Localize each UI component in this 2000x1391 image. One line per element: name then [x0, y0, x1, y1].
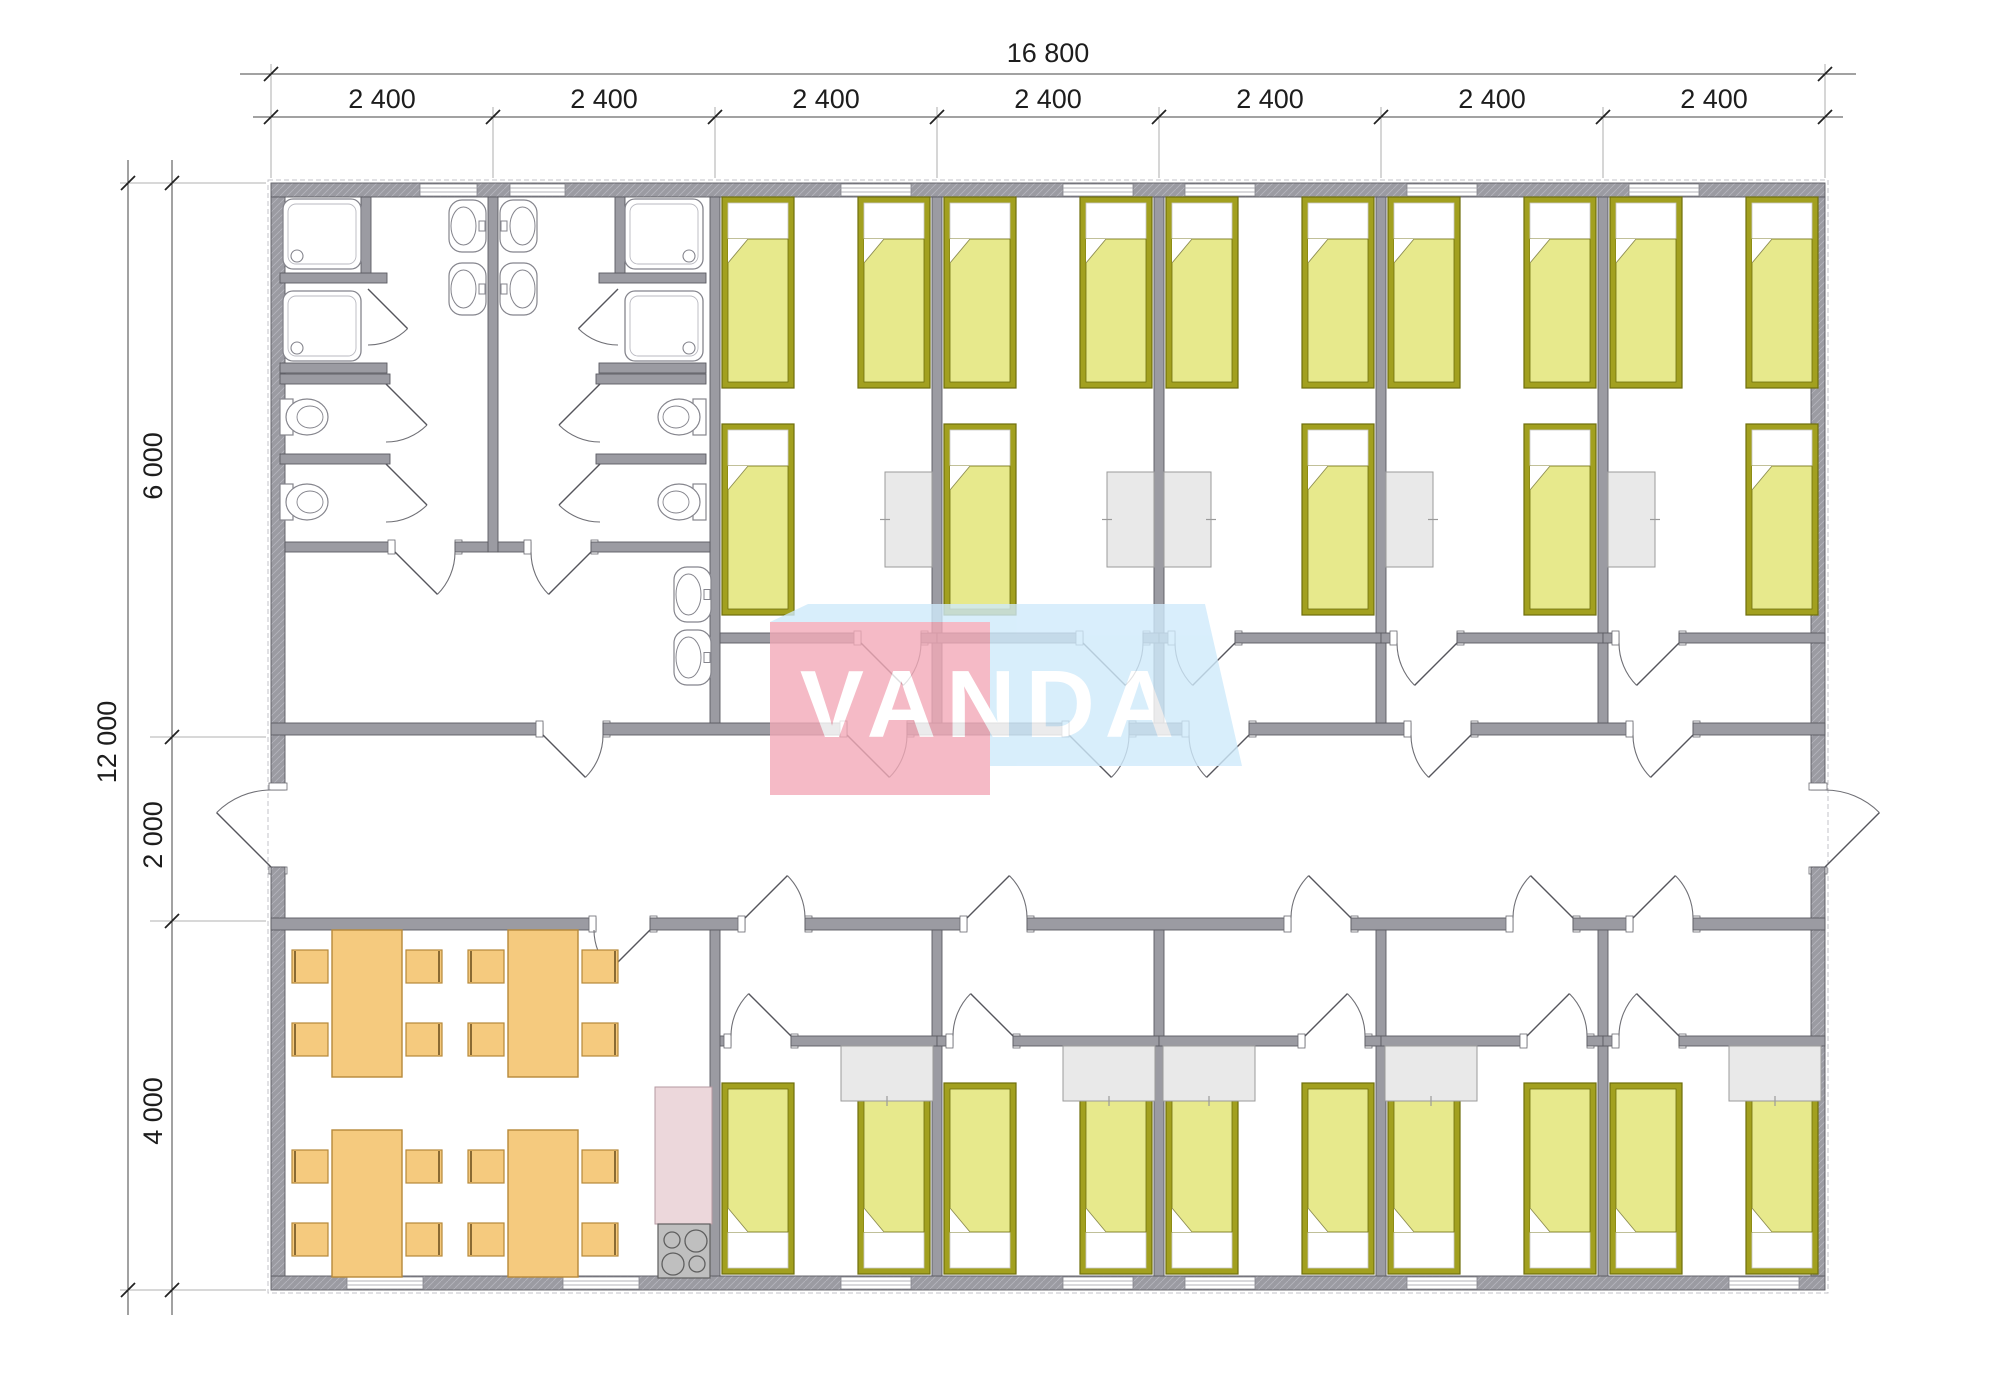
wash-basin: [449, 263, 486, 315]
door-leaf: [549, 552, 591, 594]
door-leaf: [967, 876, 1009, 918]
shower: [625, 199, 703, 269]
pillow: [864, 203, 924, 239]
blanket: [1752, 239, 1812, 382]
dim-module-width: 2 400: [792, 84, 860, 114]
blanket: [728, 466, 788, 609]
door-leaf: [1637, 643, 1679, 685]
bedroom-6: [715, 876, 942, 1276]
door-swing-arc: [953, 994, 971, 1036]
interior-wall: [1573, 918, 1633, 930]
dining-table: [332, 1130, 402, 1277]
blanket: [1394, 1089, 1454, 1232]
pillow: [1616, 203, 1676, 239]
pillow: [950, 203, 1010, 239]
shower: [625, 291, 703, 361]
interior-wall: [599, 363, 706, 373]
door-leaf: [1429, 735, 1471, 777]
window: [1063, 1277, 1133, 1289]
chair: [292, 950, 328, 983]
blanket: [1616, 1089, 1676, 1232]
door-jamb: [1520, 1034, 1527, 1048]
door-swing-arc: [1009, 876, 1027, 918]
door-jamb: [1626, 721, 1633, 737]
pillow: [1530, 430, 1590, 466]
dining-table: [332, 930, 402, 1077]
door-jamb: [1404, 721, 1411, 737]
dining-table-group: [468, 1130, 618, 1277]
interior-wall: [591, 542, 710, 552]
bed: [1166, 197, 1238, 388]
pillow: [1394, 1232, 1454, 1268]
blanket: [1530, 239, 1590, 382]
window: [1185, 1277, 1255, 1289]
bedroom-8: [1159, 876, 1386, 1276]
bed: [1524, 1083, 1596, 1274]
desk: [1729, 1046, 1821, 1106]
interior-wall: [455, 542, 488, 552]
watermark-logo-text: VANDA: [800, 651, 1184, 758]
dim-band-4000: 4 000: [138, 1077, 168, 1145]
desk: [1385, 1046, 1477, 1106]
bed: [1080, 197, 1152, 388]
bed: [1302, 1083, 1374, 1274]
pillow: [1394, 203, 1454, 239]
interior-wall: [1693, 918, 1825, 930]
wash-basin: [500, 263, 537, 315]
bed: [722, 424, 794, 615]
pillow: [1530, 1232, 1590, 1268]
door-swing-arc: [578, 329, 618, 345]
bed: [1610, 1083, 1682, 1274]
door-swing-arc: [559, 425, 600, 442]
bed: [722, 1083, 794, 1274]
interior-wall: [1457, 633, 1603, 643]
interior-wall: [1027, 918, 1291, 930]
dining-table-group: [292, 1130, 442, 1277]
pillow: [1086, 203, 1146, 239]
door-swing-arc: [1411, 735, 1429, 777]
door-leaf: [1415, 643, 1457, 685]
window: [841, 184, 911, 196]
pillow: [1752, 203, 1812, 239]
bedroom-10: [1603, 876, 1825, 1274]
window: [1185, 184, 1255, 196]
interior-wall: [1376, 197, 1386, 723]
door-leaf: [1651, 735, 1693, 777]
door-swing-arc: [531, 552, 549, 594]
tap: [501, 221, 507, 231]
bed: [722, 197, 794, 388]
bedroom-4: [1381, 197, 1608, 777]
interior-wall: [1587, 1036, 1603, 1046]
pillow: [950, 1232, 1010, 1268]
blanket: [1394, 239, 1454, 382]
door-jamb: [1612, 631, 1619, 645]
door-jamb: [724, 1034, 731, 1048]
bed: [1746, 197, 1818, 388]
interior-wall: [280, 363, 387, 373]
tap: [704, 653, 710, 663]
interior-wall: [1381, 1036, 1527, 1046]
exterior-wall: [271, 183, 1825, 197]
bed: [944, 424, 1016, 615]
pillow: [728, 1232, 788, 1268]
interior-wall: [650, 918, 745, 930]
door-leaf: [386, 384, 427, 425]
door-swing-arc: [1619, 643, 1637, 685]
interior-wall: [1376, 930, 1386, 1276]
door-jamb: [960, 916, 967, 932]
window: [1407, 1277, 1477, 1289]
bed: [1524, 424, 1596, 615]
door-jamb: [738, 916, 745, 932]
desk: [1163, 1046, 1255, 1106]
interior-wall: [1365, 1036, 1381, 1046]
pillow: [1172, 1232, 1232, 1268]
door-jamb: [1284, 916, 1291, 932]
tap: [704, 590, 710, 600]
chair: [468, 950, 504, 983]
interior-wall: [805, 918, 967, 930]
door-jamb: [1809, 783, 1827, 790]
door-jamb: [589, 916, 596, 932]
blanket: [864, 1089, 924, 1232]
pillow: [950, 430, 1010, 466]
door-leaf: [971, 994, 1013, 1036]
desk: [880, 472, 932, 567]
door-jamb: [1612, 1034, 1619, 1048]
desk: [1164, 472, 1216, 567]
door-leaf: [1531, 876, 1573, 918]
bedroom-7: [937, 876, 1164, 1276]
door-jamb: [524, 540, 531, 554]
dim-module-width: 2 400: [348, 84, 416, 114]
blanket: [950, 239, 1010, 382]
kitchen-counter: [655, 1087, 712, 1224]
door-leaf: [368, 289, 408, 329]
window: [420, 184, 477, 196]
door-swing-arc: [368, 329, 408, 345]
pillow: [728, 430, 788, 466]
door-leaf: [1309, 876, 1351, 918]
bed: [1524, 197, 1596, 388]
door-jamb: [946, 1034, 953, 1048]
floor-plan-drawing: 16 800 12 000 6 000 2 000 4 000 2 4002 4…: [0, 0, 2000, 1391]
door-leaf: [543, 735, 585, 777]
pillow: [1752, 430, 1812, 466]
door-swing-arc: [217, 790, 271, 813]
dim-module-width: 2 400: [1014, 84, 1082, 114]
door-leaf: [745, 876, 787, 918]
pillow: [728, 203, 788, 239]
bed: [1302, 197, 1374, 388]
dim-total-width: 16 800: [1007, 38, 1090, 68]
pillow: [1086, 1232, 1146, 1268]
door-leaf: [1305, 994, 1347, 1036]
window: [1729, 1277, 1799, 1289]
bedroom-5: [1603, 197, 1825, 777]
door-leaf: [1527, 994, 1569, 1036]
bed: [858, 1083, 930, 1274]
chair: [468, 1223, 504, 1256]
interior-wall: [932, 930, 942, 1276]
dining-room: [292, 930, 618, 1277]
door-swing-arc: [1633, 735, 1651, 777]
chair: [406, 950, 442, 983]
wash-basin: [674, 567, 711, 622]
door-swing-arc: [1619, 994, 1637, 1036]
vanda-watermark: VANDA: [770, 604, 1242, 795]
interior-wall: [1598, 197, 1608, 723]
window: [1063, 184, 1133, 196]
dim-module-width: 2 400: [1680, 84, 1748, 114]
blanket: [1308, 1089, 1368, 1232]
chair: [292, 1223, 328, 1256]
interior-wall: [1693, 723, 1825, 735]
dim-module-width: 2 400: [1458, 84, 1526, 114]
interior-wall: [361, 197, 371, 273]
desk: [841, 1046, 933, 1106]
chair: [406, 1150, 442, 1183]
door-leaf: [1637, 994, 1679, 1036]
blanket: [1308, 239, 1368, 382]
door-jamb: [1506, 916, 1513, 932]
window: [841, 1277, 911, 1289]
toilet: [658, 484, 706, 520]
door-leaf: [578, 289, 618, 329]
blanket: [1172, 239, 1232, 382]
interior-wall: [1598, 930, 1608, 1276]
bed: [944, 197, 1016, 388]
shower: [283, 291, 361, 361]
dining-table: [508, 1130, 578, 1277]
wash-basin: [449, 200, 486, 252]
bed: [1746, 1083, 1818, 1274]
chair: [582, 950, 618, 983]
door-leaf: [217, 813, 271, 867]
door-swing-arc: [559, 505, 600, 522]
door-leaf: [559, 384, 600, 425]
door-swing-arc: [1291, 876, 1309, 918]
toilet: [280, 484, 328, 520]
door-swing-arc: [437, 552, 455, 594]
toilet: [280, 399, 328, 435]
chair: [582, 1223, 618, 1256]
blanket: [1172, 1089, 1232, 1232]
shower: [283, 199, 361, 269]
interior-wall: [1679, 1036, 1825, 1046]
interior-wall: [1159, 1036, 1305, 1046]
door-jamb: [1626, 916, 1633, 932]
chair: [582, 1150, 618, 1183]
bed: [1388, 197, 1460, 388]
pillow: [1530, 203, 1590, 239]
door-swing-arc: [1513, 876, 1531, 918]
interior-wall: [791, 1036, 937, 1046]
wash-basin: [674, 630, 711, 685]
pillow: [1308, 1232, 1368, 1268]
blanket: [728, 1089, 788, 1232]
dim-module-width: 2 400: [1236, 84, 1304, 114]
blanket: [1530, 466, 1590, 609]
window: [510, 184, 565, 196]
blanket: [864, 239, 924, 382]
chair: [582, 1023, 618, 1056]
interior-wall: [1471, 723, 1633, 735]
door-leaf: [395, 552, 437, 594]
desk: [1102, 472, 1154, 567]
bed: [1302, 424, 1374, 615]
interior-wall: [285, 542, 395, 552]
blanket: [1308, 466, 1368, 609]
blanket: [1086, 239, 1146, 382]
interior-wall: [615, 197, 625, 273]
door-swing-arc: [386, 425, 427, 442]
blanket: [950, 466, 1010, 609]
tap: [479, 221, 485, 231]
door-jamb: [1390, 631, 1397, 645]
chair: [406, 1223, 442, 1256]
door-jamb: [536, 721, 543, 737]
blanket: [950, 1089, 1010, 1232]
door-jamb: [269, 783, 287, 790]
door-leaf: [386, 464, 427, 505]
pillow: [1308, 203, 1368, 239]
blanket: [728, 239, 788, 382]
door-jamb: [388, 540, 395, 554]
door-swing-arc: [1825, 790, 1879, 813]
floor-plan-page: 16 800 12 000 6 000 2 000 4 000 2 4002 4…: [0, 0, 2000, 1391]
interior-wall: [271, 918, 596, 930]
interior-wall: [280, 273, 387, 283]
desk: [1063, 1046, 1155, 1106]
door-swing-arc: [1675, 876, 1693, 918]
chair: [406, 1023, 442, 1056]
dining-table-group: [292, 930, 442, 1077]
bed: [1610, 197, 1682, 388]
door-swing-arc: [386, 505, 427, 522]
interior-wall: [280, 454, 390, 464]
desk: [1608, 472, 1660, 567]
pillow: [1308, 430, 1368, 466]
blanket: [1086, 1089, 1146, 1232]
dim-module-width: 2 400: [570, 84, 638, 114]
interior-wall: [1154, 930, 1164, 1276]
chair: [292, 1023, 328, 1056]
bed: [858, 197, 930, 388]
door-leaf: [1825, 813, 1879, 867]
dim-band-2000: 2 000: [138, 801, 168, 869]
door-swing-arc: [585, 735, 603, 777]
door-leaf: [559, 464, 600, 505]
door-leaf: [749, 994, 791, 1036]
chair: [292, 1150, 328, 1183]
door-swing-arc: [1397, 643, 1415, 685]
door-leaf: [1633, 876, 1675, 918]
pillow: [1616, 1232, 1676, 1268]
bed: [944, 1083, 1016, 1274]
interior-wall: [280, 374, 390, 384]
window: [347, 1277, 423, 1289]
bedroom-9: [1381, 876, 1608, 1276]
tap: [479, 284, 485, 294]
dining-table-group: [468, 930, 618, 1077]
exterior-wall: [271, 1276, 1825, 1290]
window: [1407, 184, 1477, 196]
pillow: [1752, 1232, 1812, 1268]
pillow: [1172, 203, 1232, 239]
interior-wall: [1013, 1036, 1159, 1046]
bathroom-block: [280, 197, 720, 723]
chair: [468, 1150, 504, 1183]
door-jamb: [1298, 1034, 1305, 1048]
door-swing-arc: [731, 994, 749, 1036]
dining-table: [508, 930, 578, 1077]
interior-wall: [599, 273, 706, 283]
interior-wall: [1235, 633, 1381, 643]
desk: [1386, 472, 1438, 567]
blanket: [1752, 1089, 1812, 1232]
wash-basin: [500, 200, 537, 252]
window: [1629, 184, 1699, 196]
interior-wall: [488, 197, 498, 552]
interior-wall: [1351, 918, 1513, 930]
chair: [468, 1023, 504, 1056]
bed: [1166, 1083, 1238, 1274]
tap: [501, 284, 507, 294]
blanket: [1752, 466, 1812, 609]
bed: [1746, 424, 1818, 615]
interior-wall: [1249, 723, 1411, 735]
dim-band-6000: 6 000: [138, 432, 168, 500]
blanket: [1616, 239, 1676, 382]
window: [563, 1277, 639, 1289]
door-swing-arc: [787, 876, 805, 918]
interior-wall: [596, 374, 706, 384]
interior-wall: [1679, 633, 1825, 643]
kitchen: [655, 1087, 712, 1278]
door-swing-arc: [1569, 994, 1587, 1036]
door-swing-arc: [1347, 994, 1365, 1036]
bed: [1080, 1083, 1152, 1274]
blanket: [1530, 1089, 1590, 1232]
bed: [1388, 1083, 1460, 1274]
pillow: [864, 1232, 924, 1268]
dim-total-height: 12 000: [92, 701, 122, 784]
interior-wall: [271, 723, 543, 735]
interior-wall: [596, 454, 706, 464]
toilet: [658, 399, 706, 435]
